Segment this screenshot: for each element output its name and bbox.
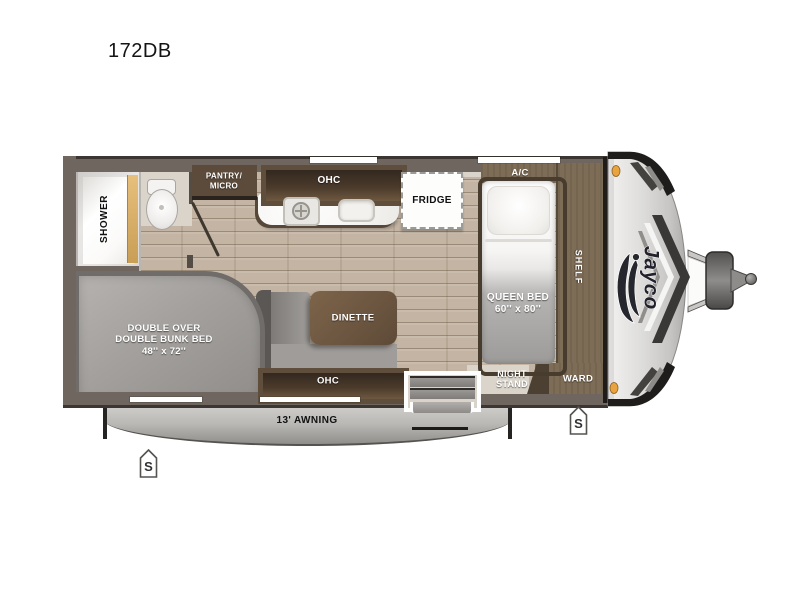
toilet-flush-icon (159, 205, 164, 210)
front-cap: Jayco (600, 145, 760, 411)
toilet-bowl-icon (146, 189, 178, 230)
fold-out-step (410, 402, 474, 413)
dinette-label: DINETTE (332, 312, 375, 323)
kitchen-ohc-label: OHC (317, 175, 340, 187)
bathroom-wall-stub (187, 255, 193, 268)
queen-bed (482, 181, 555, 364)
marker-light-icon (612, 166, 620, 177)
hitch-coupler-icon (706, 252, 733, 309)
wall-rear (63, 156, 76, 405)
awning-end-cap (103, 404, 107, 439)
sink-icon (338, 199, 375, 222)
brand-logo-text: Jayco (640, 246, 663, 311)
pantry-label: PANTRY/ MICRO (206, 171, 242, 190)
awning-end-cap (508, 404, 512, 439)
jayco-logo: Jayco (640, 246, 663, 311)
window (260, 397, 360, 402)
night-stand-label: NIGHT STAND (496, 370, 528, 390)
bunk-bed-label: DOUBLE OVER DOUBLE BUNK BED 48'' x 72'' (115, 323, 212, 357)
hitch-ball-icon (746, 274, 757, 285)
floorplan-canvas: 172DB SHOWER PANTRY/ MICRO OHC FRIDGE A/… (0, 0, 800, 600)
step-shadow-line (412, 427, 468, 430)
fridge: FRIDGE (401, 172, 463, 229)
marker-light-icon (610, 383, 618, 394)
model-title: 172DB (108, 40, 172, 63)
fridge-label: FRIDGE (412, 195, 452, 207)
stabilizer-label: S (144, 459, 153, 474)
step (410, 376, 475, 387)
queen-bed-label: QUEEN BED 60'' x 80'' (487, 292, 549, 316)
cap-seam (603, 157, 608, 403)
shower-door (127, 175, 138, 263)
step (410, 388, 475, 399)
pillow-icon (487, 186, 550, 235)
ac-label: A/C (511, 167, 528, 178)
hitch-icon (688, 250, 757, 312)
sheet-fold (485, 239, 552, 242)
shelf-label: SHELF (573, 250, 584, 285)
cooktop-icon (283, 197, 320, 226)
shower-label: SHOWER (99, 195, 111, 243)
window (478, 157, 560, 163)
dinette-ohc-label: OHC (317, 375, 339, 386)
window (310, 157, 377, 163)
stabilizer-label: S (574, 416, 583, 431)
window (130, 397, 202, 402)
awning-label: 13' AWNING (276, 415, 337, 427)
burner-icon (292, 202, 310, 220)
stabilizer-jack-icon: S (569, 406, 588, 435)
stabilizer-jack-icon: S (139, 449, 158, 478)
wardrobe-label: WARD (563, 373, 593, 384)
dinette-bench-seat (271, 344, 397, 371)
